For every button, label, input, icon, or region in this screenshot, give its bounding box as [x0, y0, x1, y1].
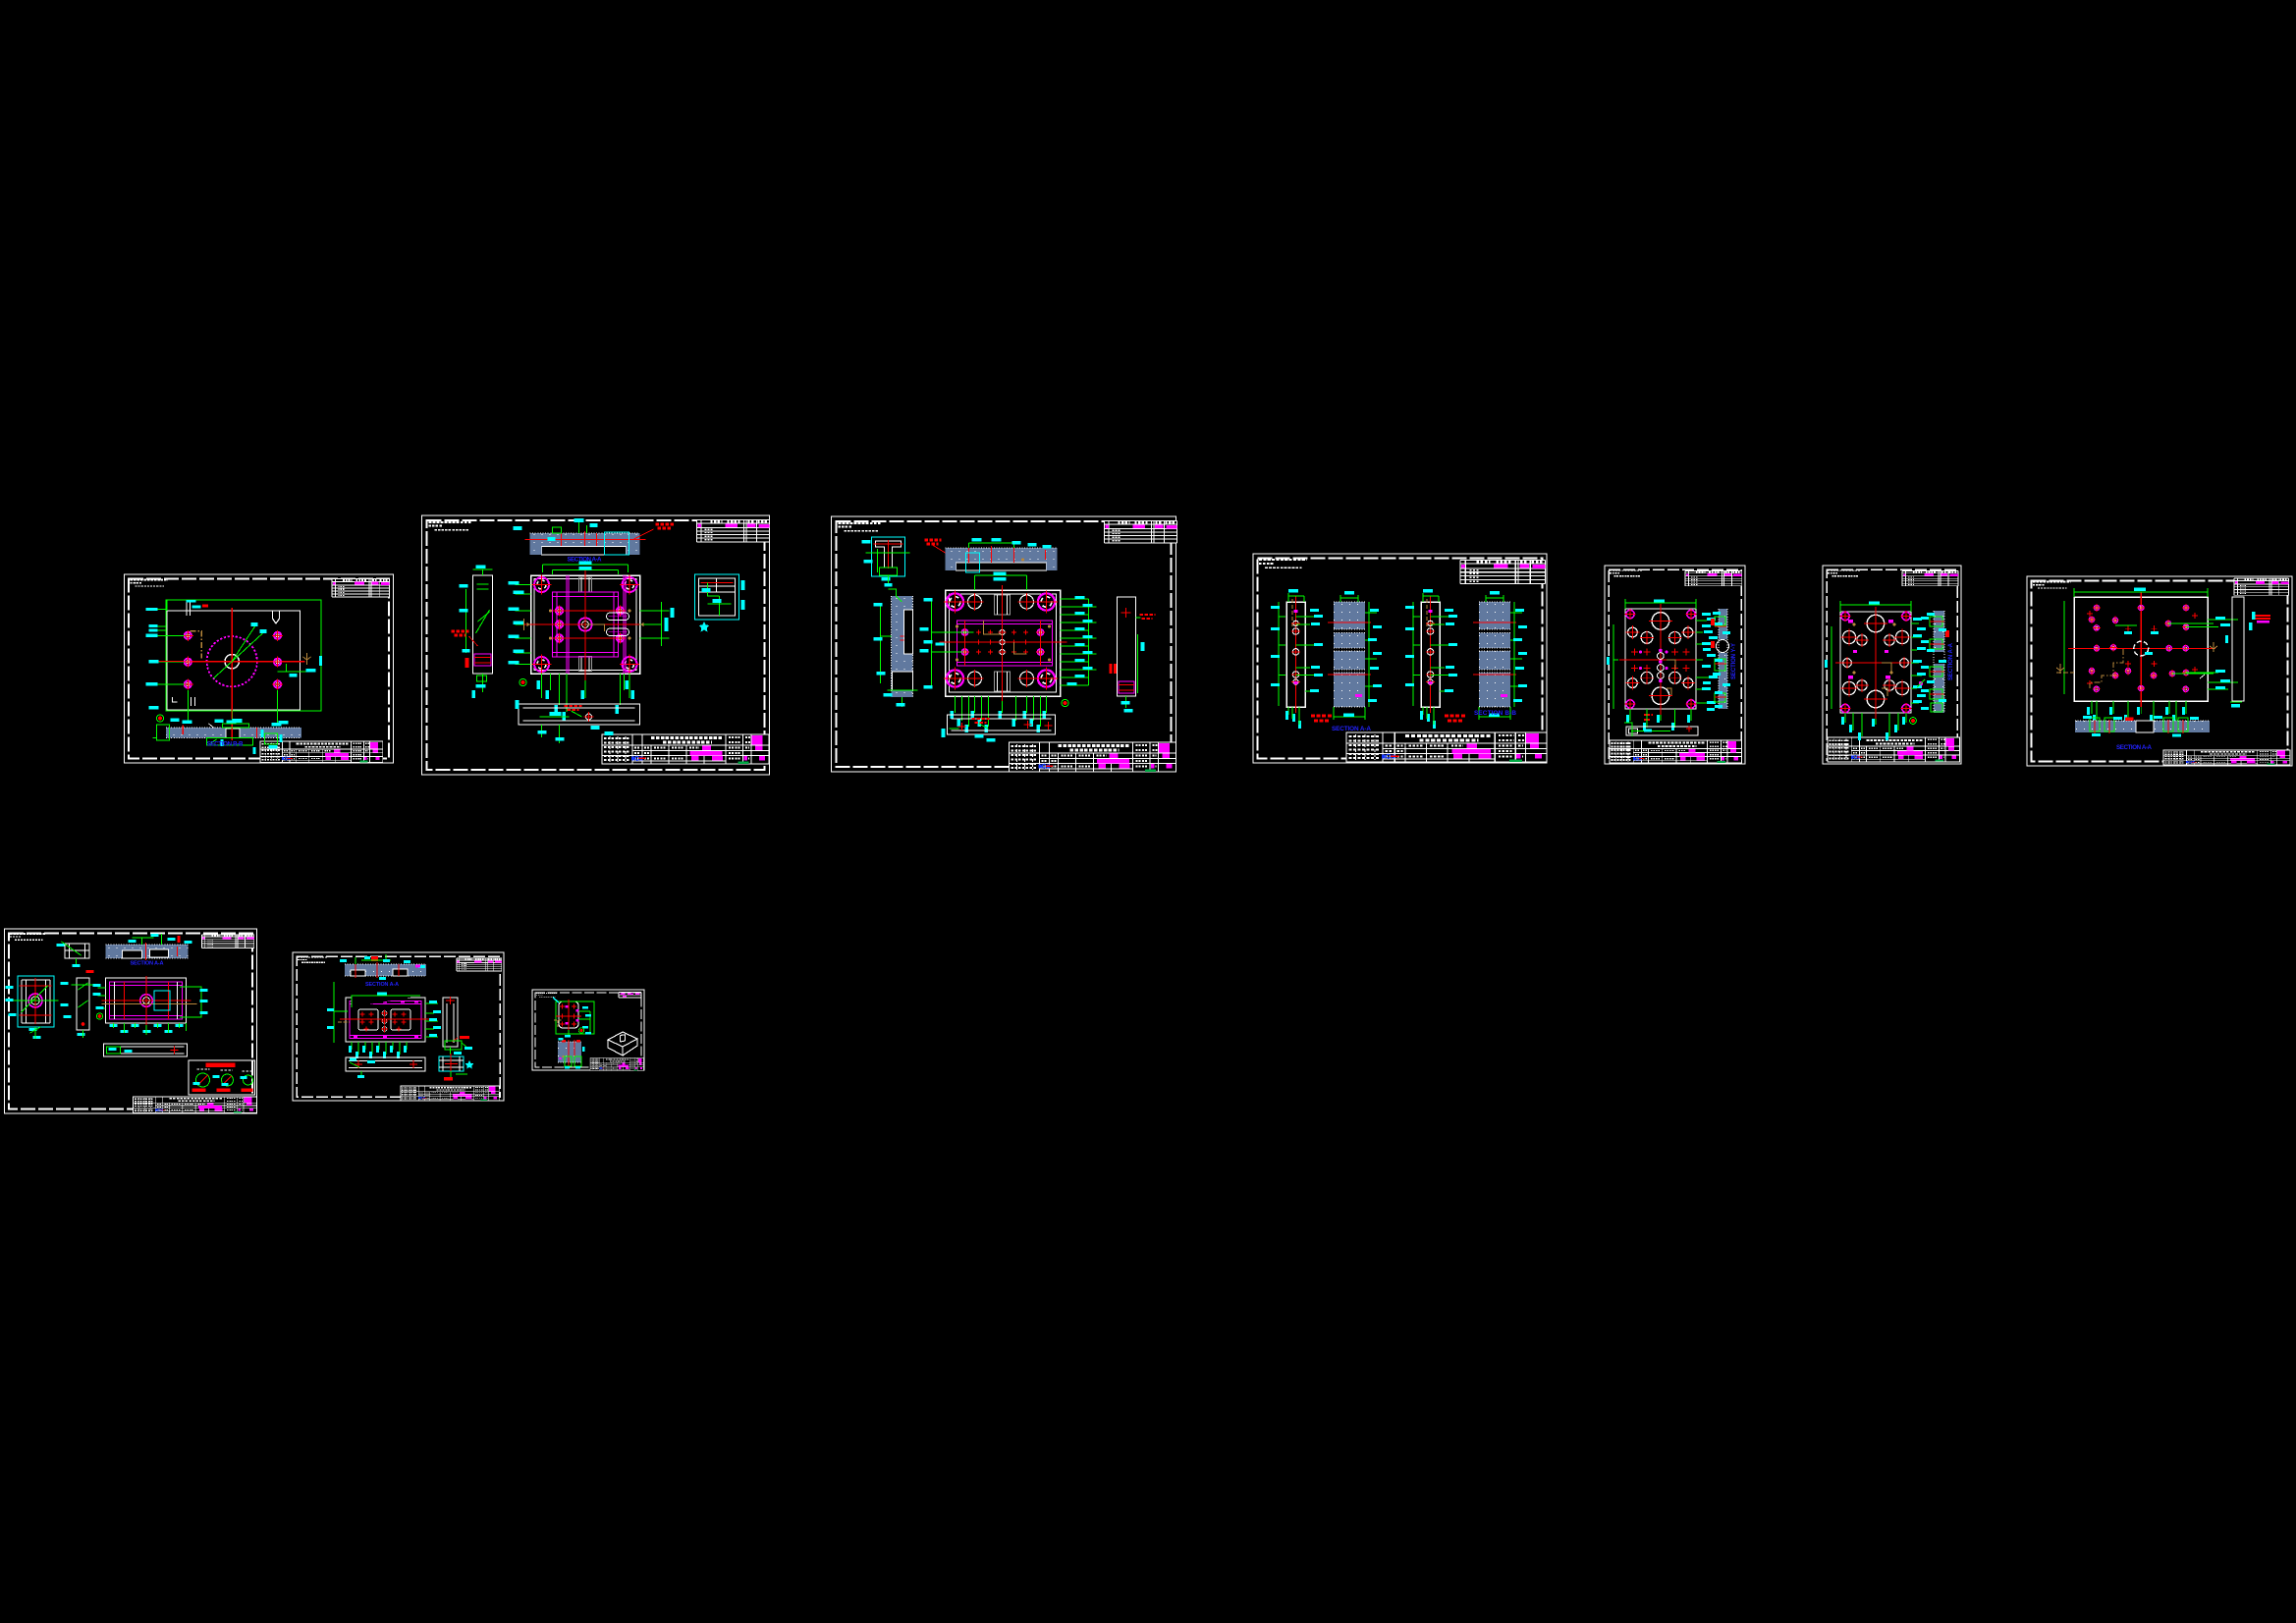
- svg-text:SECTION A-A: SECTION A-A: [1948, 642, 1954, 680]
- svg-text:SECTION Y-Y: SECTION Y-Y: [1731, 643, 1737, 679]
- svg-text:SECTION A-A: SECTION A-A: [2116, 744, 2153, 751]
- svg-text:SECTION A-A: SECTION A-A: [131, 961, 164, 967]
- svg-text:SECTION A-A: SECTION A-A: [1332, 726, 1371, 732]
- svg-text:SECTION A-A: SECTION A-A: [365, 982, 399, 988]
- svg-text:SECTION B-B: SECTION B-B: [207, 741, 245, 748]
- svg-text:SECTION B-B: SECTION B-B: [1474, 710, 1516, 717]
